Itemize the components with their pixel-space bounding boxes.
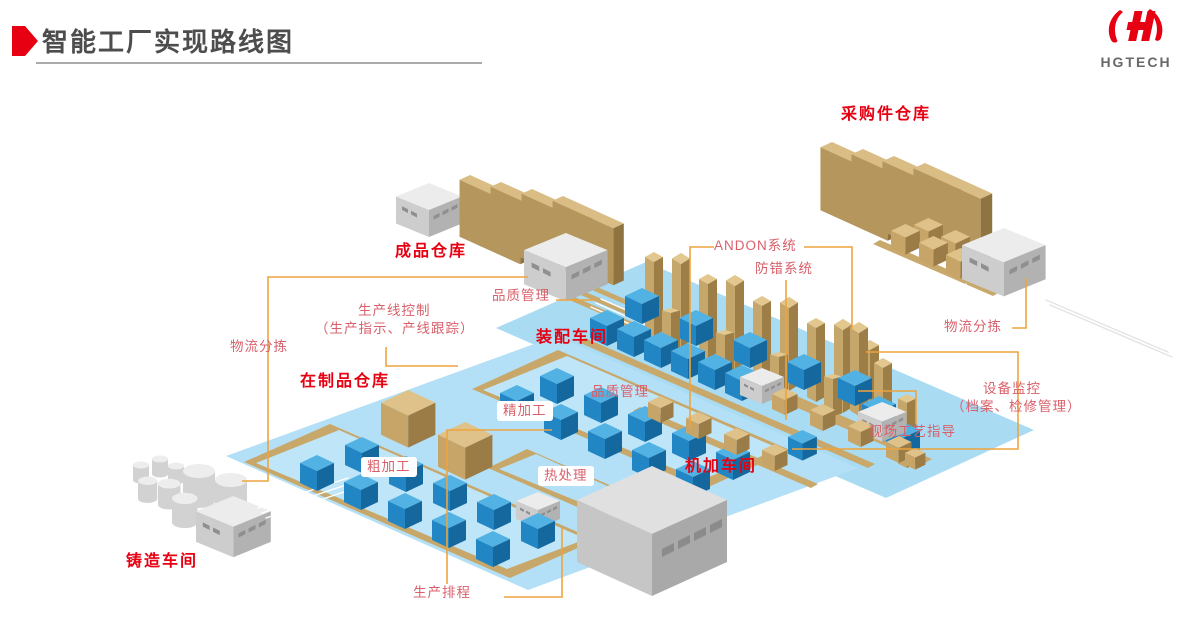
label-fine-machining: 精加工 xyxy=(497,401,553,421)
label-machining-shop: 机加车间 xyxy=(685,458,757,475)
label-wip-warehouse: 在制品仓库 xyxy=(300,373,390,390)
slide: 智能工厂实现路线图 HGTECH xyxy=(0,0,1190,637)
label-site-process-guidance: 现场工艺指导 xyxy=(869,423,956,440)
connector-line-control xyxy=(386,347,458,366)
label-purchased-warehouse: 采购件仓库 xyxy=(841,106,931,123)
casting-workshop xyxy=(133,456,271,558)
label-finished-warehouse: 成品仓库 xyxy=(395,243,467,260)
label-quality-top: 品质管理 xyxy=(492,287,550,304)
label-quality-mid: 品质管理 xyxy=(591,383,649,400)
label-rough-machining: 粗加工 xyxy=(361,457,417,477)
label-production-scheduling: 生产排程 xyxy=(413,584,471,601)
purchased-parts-warehouse xyxy=(820,142,1045,296)
label-casting-shop: 铸造车间 xyxy=(126,553,198,570)
label-logistics-right: 物流分拣 xyxy=(944,318,1002,335)
label-heat-treatment: 热处理 xyxy=(538,466,594,486)
label-line-control-2: （生产指示、产线跟踪） xyxy=(315,320,475,337)
finished-goods-warehouse xyxy=(396,175,624,301)
label-error-proofing: 防错系统 xyxy=(755,260,813,277)
label-assembly-shop: 装配车间 xyxy=(536,329,608,346)
label-line-control-1: 生产线控制 xyxy=(358,302,431,319)
label-andon: ANDON系统 xyxy=(714,237,797,254)
label-equipment-monitoring-1: 设备监控 xyxy=(983,380,1041,397)
label-equipment-monitoring-2: （档案、检修管理） xyxy=(951,398,1082,415)
label-logistics-left: 物流分拣 xyxy=(230,338,288,355)
factory-diagram xyxy=(0,0,1190,637)
